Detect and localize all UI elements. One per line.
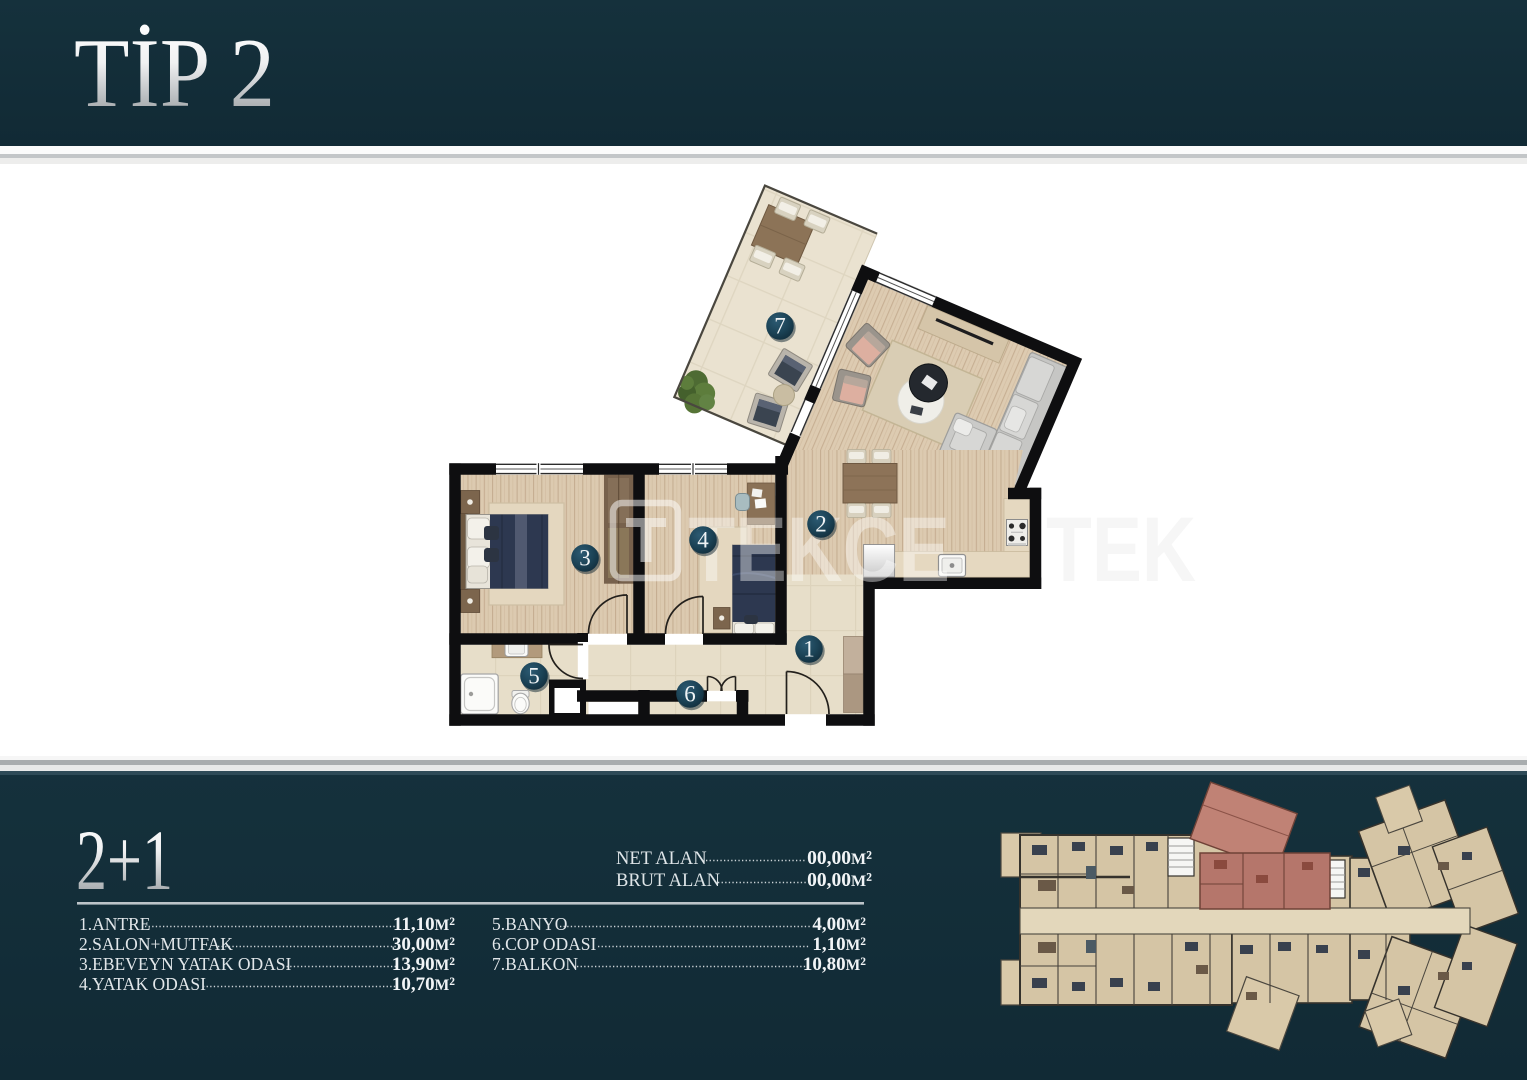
svg-text:4,00M²: 4,00M² (812, 914, 866, 935)
svg-text:5.BANYO: 5.BANYO (492, 914, 567, 934)
svg-text:11,10M²: 11,10M² (393, 914, 455, 935)
svg-text:3: 3 (579, 546, 591, 571)
svg-text:1,10M²: 1,10M² (812, 934, 866, 955)
svg-text:1.ANTRE: 1.ANTRE (79, 914, 150, 934)
svg-text:2+1: 2+1 (76, 812, 173, 908)
svg-text:TİP 2: TİP 2 (74, 19, 275, 128)
svg-text:1: 1 (803, 637, 815, 662)
svg-text:6.COP ODASI: 6.COP ODASI (492, 934, 597, 954)
svg-text:4.YATAK ODASI: 4.YATAK ODASI (79, 974, 206, 994)
svg-text:13,90M²: 13,90M² (392, 954, 455, 975)
svg-text:7.BALKON: 7.BALKON (492, 954, 578, 974)
svg-text:2: 2 (815, 512, 827, 537)
svg-text:3.EBEVEYN YATAK ODASI: 3.EBEVEYN YATAK ODASI (79, 954, 291, 974)
svg-text:5: 5 (528, 664, 540, 689)
svg-text:30,00M²: 30,00M² (392, 934, 455, 955)
svg-text:10,80M²: 10,80M² (803, 954, 866, 975)
svg-text:10,70M²: 10,70M² (392, 974, 455, 995)
svg-text:NET ALAN: NET ALAN (616, 849, 707, 869)
svg-text:4: 4 (697, 528, 709, 553)
svg-text:2.SALON+MUTFAK: 2.SALON+MUTFAK (79, 934, 233, 954)
svg-text:00,00M²: 00,00M² (807, 870, 872, 891)
svg-text:TEK: TEK (1046, 499, 1196, 601)
svg-text:00,00M²: 00,00M² (807, 848, 872, 869)
svg-text:7: 7 (774, 314, 786, 339)
svg-text:BRUT ALAN: BRUT ALAN (616, 871, 720, 891)
svg-text:6: 6 (684, 682, 696, 707)
